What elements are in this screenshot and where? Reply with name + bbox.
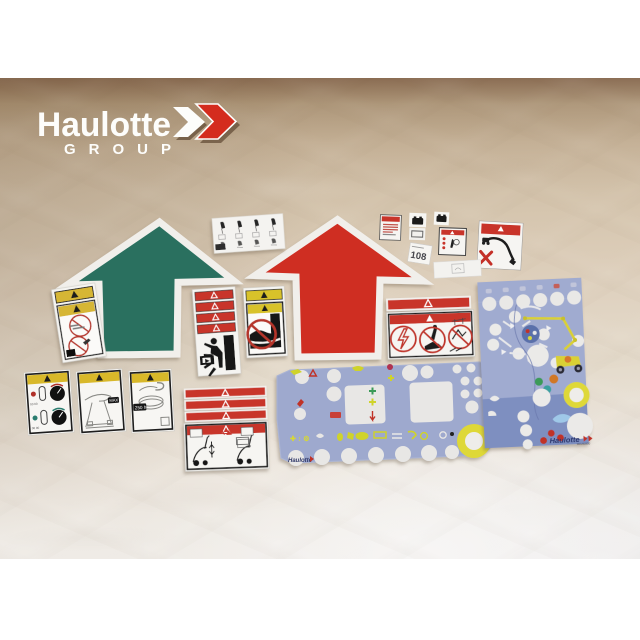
svg-text:00 00: 00 00 [30, 402, 38, 407]
svg-text:MAX: MAX [109, 397, 118, 403]
svg-text:Haulotte: Haulotte [549, 435, 579, 445]
svg-text:Haulotte: Haulotte [37, 106, 171, 144]
svg-text:00 00: 00 00 [32, 426, 40, 431]
svg-text:Haulotte: Haulotte [288, 458, 313, 464]
svg-text:250 h: 250 h [135, 405, 147, 411]
svg-text:30140000: 30140000 [577, 441, 591, 446]
svg-text:✚ ↕ ⚙: ✚ ↕ ⚙ [290, 435, 310, 443]
